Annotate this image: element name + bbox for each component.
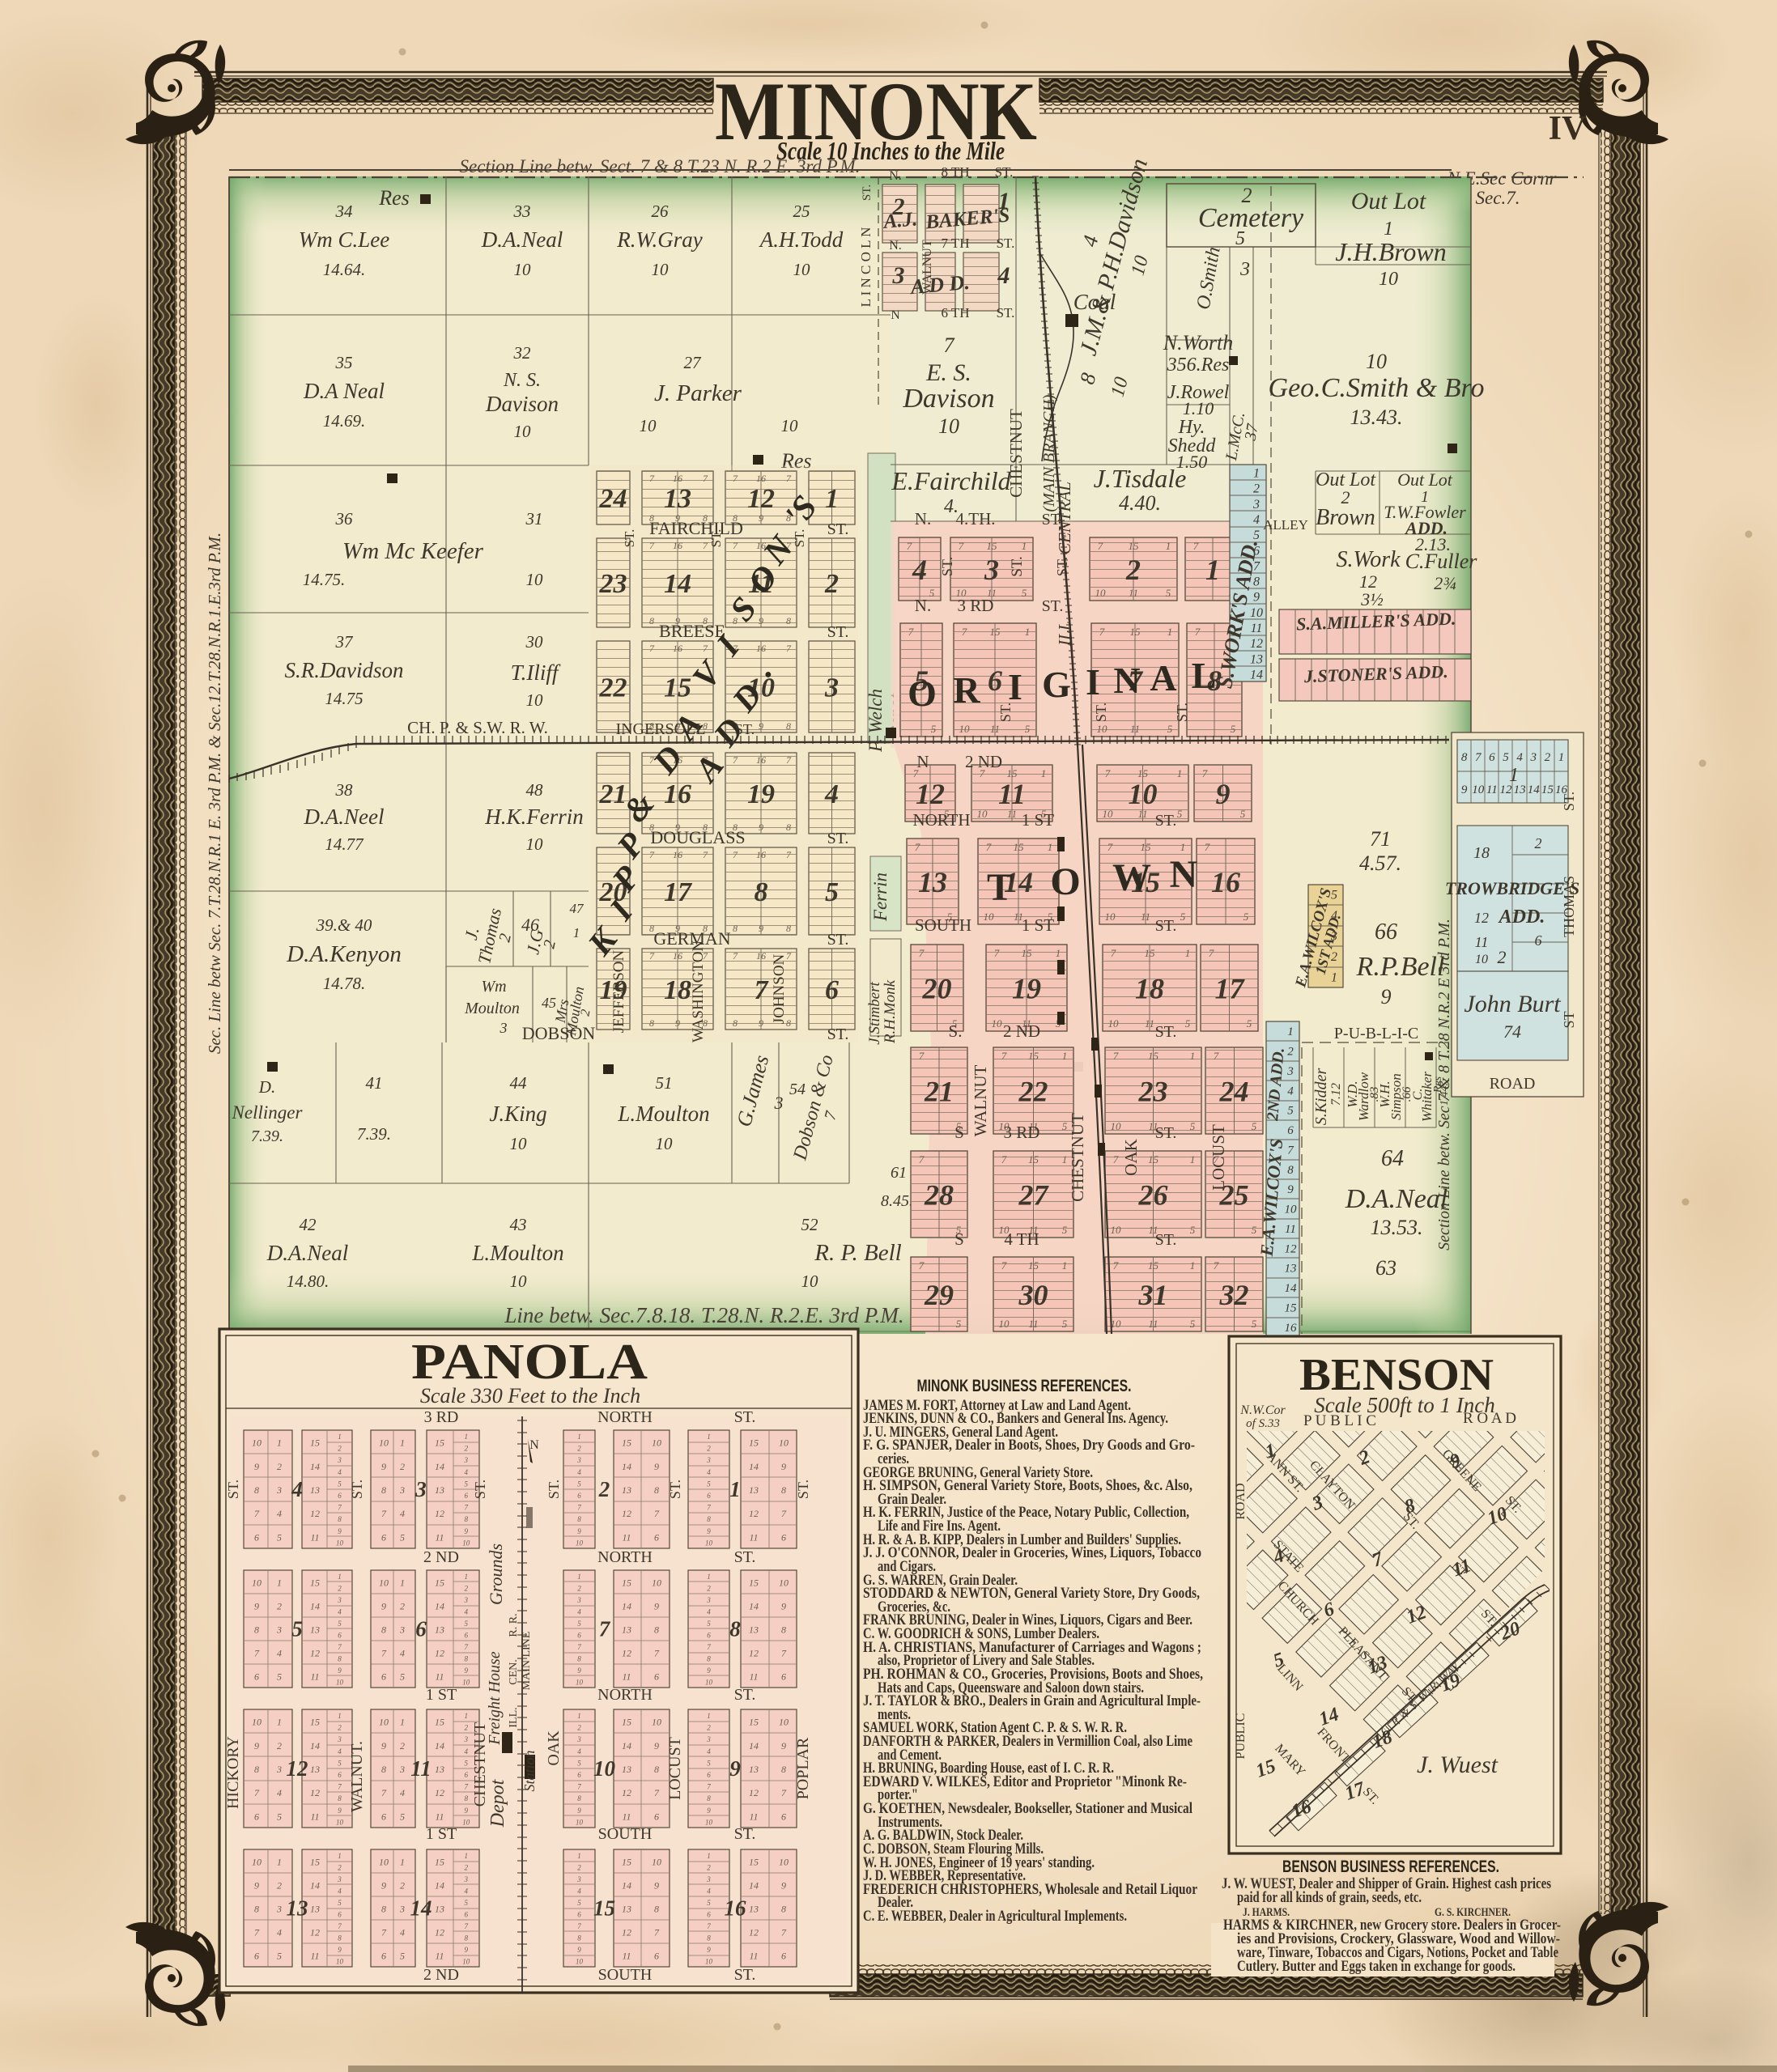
svg-text:44: 44 xyxy=(510,1073,528,1093)
svg-text:ST.: ST. xyxy=(939,557,955,576)
svg-text:7: 7 xyxy=(1098,540,1103,552)
svg-text:5: 5 xyxy=(707,1759,711,1767)
svg-text:14: 14 xyxy=(435,1740,444,1751)
svg-text:6: 6 xyxy=(338,1492,342,1500)
svg-text:7: 7 xyxy=(781,1508,787,1519)
svg-text:ST.: ST. xyxy=(225,1480,241,1499)
svg-text:J.H.Brown: J.H.Brown xyxy=(1335,237,1446,266)
svg-text:6: 6 xyxy=(825,975,839,1005)
svg-text:5: 5 xyxy=(1190,1120,1196,1132)
svg-text:10: 10 xyxy=(999,1318,1010,1330)
svg-text:5: 5 xyxy=(338,1620,342,1628)
svg-text:2: 2 xyxy=(577,1724,581,1732)
svg-text:Sec. Line betw Sec. 7.T.28.N.R: Sec. Line betw Sec. 7.T.28.N.R.1 E. 3rd … xyxy=(205,533,224,1054)
svg-text:5: 5 xyxy=(577,1759,581,1767)
svg-text:10: 10 xyxy=(992,1017,1003,1030)
svg-text:9: 9 xyxy=(707,1807,711,1815)
svg-text:R. R.: R. R. xyxy=(508,1613,520,1637)
svg-text:1: 1 xyxy=(277,1717,282,1728)
svg-text:S: S xyxy=(954,1123,964,1142)
svg-text:9: 9 xyxy=(1461,783,1468,796)
svg-text:8: 8 xyxy=(755,877,768,907)
svg-text:10: 10 xyxy=(1475,953,1488,966)
svg-text:D.A.Neal: D.A.Neal xyxy=(1345,1184,1448,1214)
svg-text:15: 15 xyxy=(435,1857,444,1868)
svg-text:N. S.: N. S. xyxy=(503,370,541,391)
svg-text:5: 5 xyxy=(1190,1318,1196,1330)
svg-text:10: 10 xyxy=(252,1857,261,1868)
svg-text:DOUGLASS: DOUGLASS xyxy=(650,827,745,847)
svg-text:ST.: ST. xyxy=(827,520,849,538)
svg-text:15: 15 xyxy=(749,1717,759,1728)
svg-text:10: 10 xyxy=(1379,269,1398,290)
svg-text:3: 3 xyxy=(337,1456,342,1464)
svg-text:15: 15 xyxy=(435,1717,444,1728)
svg-text:7: 7 xyxy=(1195,626,1201,638)
svg-text:7: 7 xyxy=(959,540,964,552)
svg-text:WALNUT.: WALNUT. xyxy=(348,1741,366,1812)
svg-text:16: 16 xyxy=(673,643,682,654)
svg-text:Grounds: Grounds xyxy=(486,1543,506,1605)
svg-text:8: 8 xyxy=(781,1624,786,1636)
svg-text:12: 12 xyxy=(1474,910,1489,926)
svg-text:11: 11 xyxy=(1148,1318,1158,1330)
svg-text:10: 10 xyxy=(705,1678,713,1686)
svg-text:15: 15 xyxy=(1148,1259,1159,1272)
svg-text:10: 10 xyxy=(1250,606,1263,620)
svg-text:2: 2 xyxy=(277,1461,282,1472)
svg-text:3: 3 xyxy=(576,1875,581,1883)
svg-text:7: 7 xyxy=(465,1504,469,1512)
svg-text:Moulton: Moulton xyxy=(464,1000,520,1017)
svg-text:3: 3 xyxy=(984,554,999,586)
svg-text:7: 7 xyxy=(1001,1050,1007,1062)
svg-text:10: 10 xyxy=(576,1678,584,1686)
svg-text:8: 8 xyxy=(577,1934,581,1942)
svg-text:14: 14 xyxy=(749,1880,759,1892)
svg-text:WASHINGTON: WASHINGTON xyxy=(690,940,707,1043)
svg-text:7: 7 xyxy=(944,333,955,357)
svg-text:12: 12 xyxy=(310,1508,320,1519)
svg-text:9: 9 xyxy=(781,1740,786,1751)
svg-text:8: 8 xyxy=(649,1017,654,1029)
svg-text:10: 10 xyxy=(1105,911,1116,923)
svg-text:13: 13 xyxy=(918,866,947,898)
svg-text:13: 13 xyxy=(310,1764,320,1775)
svg-text:13: 13 xyxy=(622,1484,631,1496)
svg-text:11: 11 xyxy=(622,1531,631,1543)
svg-text:4: 4 xyxy=(997,262,1010,289)
svg-text:7: 7 xyxy=(733,950,738,962)
svg-text:9: 9 xyxy=(707,1667,711,1675)
svg-text:3: 3 xyxy=(500,1020,508,1036)
svg-text:74: 74 xyxy=(1503,1021,1521,1042)
svg-text:7: 7 xyxy=(654,1508,660,1519)
svg-text:5: 5 xyxy=(707,1899,711,1907)
svg-text:5: 5 xyxy=(1062,1318,1068,1330)
svg-text:7: 7 xyxy=(707,1922,711,1930)
svg-text:13: 13 xyxy=(749,1484,759,1496)
svg-text:OAK: OAK xyxy=(1121,1139,1141,1176)
svg-text:1: 1 xyxy=(1253,467,1260,481)
svg-text:15: 15 xyxy=(1028,1050,1039,1062)
svg-text:2: 2 xyxy=(1125,554,1141,586)
svg-text:4: 4 xyxy=(824,779,839,809)
svg-text:10: 10 xyxy=(1111,1224,1122,1236)
svg-text:3: 3 xyxy=(464,1596,469,1604)
svg-text:8: 8 xyxy=(786,923,791,934)
svg-text:15: 15 xyxy=(1007,767,1018,779)
svg-text:Wm: Wm xyxy=(481,978,506,996)
svg-text:11: 11 xyxy=(1475,934,1489,950)
svg-text:4: 4 xyxy=(465,1747,469,1756)
svg-text:9: 9 xyxy=(465,1527,469,1535)
svg-text:8: 8 xyxy=(654,1624,659,1636)
svg-text:23: 23 xyxy=(599,569,627,599)
svg-text:8: 8 xyxy=(577,1654,581,1662)
svg-text:2 ND: 2 ND xyxy=(1003,1021,1040,1041)
svg-text:1: 1 xyxy=(338,1433,342,1441)
svg-text:2: 2 xyxy=(577,1863,581,1871)
svg-text:5: 5 xyxy=(825,877,839,907)
svg-text:6: 6 xyxy=(654,1951,659,1962)
svg-text:8: 8 xyxy=(338,1794,342,1802)
svg-text:7 TH: 7 TH xyxy=(941,236,969,251)
svg-text:12: 12 xyxy=(916,778,945,810)
svg-text:8: 8 xyxy=(781,1484,786,1496)
svg-text:2: 2 xyxy=(465,1584,469,1592)
svg-text:LOCUST: LOCUST xyxy=(1209,1124,1228,1191)
svg-text:6: 6 xyxy=(381,1811,386,1822)
svg-text:5: 5 xyxy=(1166,587,1171,599)
svg-text:16: 16 xyxy=(756,473,766,484)
svg-text:8: 8 xyxy=(254,1624,259,1636)
svg-text:14: 14 xyxy=(1528,783,1541,796)
svg-text:7.39.: 7.39. xyxy=(251,1127,283,1145)
svg-text:JEFFERSON: JEFFERSON xyxy=(610,950,627,1034)
svg-text:10: 10 xyxy=(526,570,544,589)
svg-text:R. P. Bell: R. P. Bell xyxy=(814,1240,901,1266)
svg-text:30: 30 xyxy=(1018,1279,1048,1311)
svg-text:6 TH: 6 TH xyxy=(941,305,969,321)
svg-text:14.69.: 14.69. xyxy=(323,411,366,431)
svg-text:4: 4 xyxy=(577,1887,581,1895)
svg-text:5: 5 xyxy=(400,1671,405,1683)
svg-text:10: 10 xyxy=(462,1539,470,1547)
svg-text:7: 7 xyxy=(254,1508,260,1519)
svg-text:7: 7 xyxy=(1205,841,1210,853)
svg-text:ST.: ST. xyxy=(1561,792,1577,811)
svg-text:Ferrin: Ferrin xyxy=(870,873,891,922)
svg-text:15: 15 xyxy=(1137,767,1149,779)
svg-text:356.Res: 356.Res xyxy=(1167,355,1230,376)
svg-text:5: 5 xyxy=(277,1531,282,1543)
svg-text:ST.: ST. xyxy=(1155,1124,1177,1142)
svg-text:9: 9 xyxy=(654,1601,659,1612)
svg-text:15: 15 xyxy=(310,1717,320,1728)
svg-text:1: 1 xyxy=(1062,1050,1068,1062)
svg-text:2: 2 xyxy=(338,1584,342,1592)
svg-text:6: 6 xyxy=(577,1771,581,1779)
svg-text:9: 9 xyxy=(1287,1183,1294,1196)
svg-text:8: 8 xyxy=(1287,1164,1294,1177)
svg-text:15: 15 xyxy=(1285,1301,1298,1314)
svg-text:7: 7 xyxy=(338,1643,342,1651)
svg-text:R.P.Bell: R.P.Bell xyxy=(1356,952,1445,982)
svg-text:5: 5 xyxy=(1240,808,1246,820)
svg-text:12: 12 xyxy=(310,1648,320,1659)
svg-text:N.: N. xyxy=(889,239,902,253)
svg-text:14: 14 xyxy=(622,1880,631,1892)
svg-text:N: N xyxy=(529,1438,539,1452)
svg-text:3: 3 xyxy=(399,1904,405,1915)
svg-text:4: 4 xyxy=(277,1787,282,1798)
svg-text:1: 1 xyxy=(1022,540,1027,552)
svg-text:14: 14 xyxy=(1250,668,1263,681)
svg-text:4: 4 xyxy=(277,1927,282,1938)
svg-text:3: 3 xyxy=(337,1735,342,1743)
svg-text:5: 5 xyxy=(465,1480,469,1488)
svg-text:5: 5 xyxy=(707,1620,711,1628)
svg-text:1: 1 xyxy=(1062,1259,1068,1272)
svg-text:10: 10 xyxy=(1108,1017,1120,1030)
svg-text:9: 9 xyxy=(759,720,763,732)
svg-text:6: 6 xyxy=(338,1910,342,1918)
svg-text:10: 10 xyxy=(1285,1204,1298,1216)
svg-text:BENSON BUSINESS REFERENCES.: BENSON BUSINESS REFERENCES. xyxy=(1282,1858,1499,1876)
svg-text:13: 13 xyxy=(664,484,691,514)
svg-text:10: 10 xyxy=(379,1577,389,1589)
svg-text:9: 9 xyxy=(781,1461,786,1472)
svg-text:8: 8 xyxy=(733,923,738,934)
svg-text:5: 5 xyxy=(1252,1318,1257,1330)
svg-text:D.A.Neal: D.A.Neal xyxy=(266,1241,349,1265)
svg-text:9: 9 xyxy=(381,1880,386,1892)
svg-text:12: 12 xyxy=(435,1927,444,1938)
svg-text:10: 10 xyxy=(526,834,544,854)
svg-text:8: 8 xyxy=(654,1484,659,1496)
svg-text:15: 15 xyxy=(1022,947,1033,959)
svg-text:18: 18 xyxy=(1135,973,1164,1005)
svg-text:11: 11 xyxy=(622,1951,631,1962)
svg-text:3: 3 xyxy=(706,1875,711,1883)
svg-text:6: 6 xyxy=(1489,751,1495,764)
svg-text:9: 9 xyxy=(654,1461,659,1472)
svg-text:7: 7 xyxy=(1113,1050,1119,1062)
svg-text:7: 7 xyxy=(962,626,967,638)
svg-text:16: 16 xyxy=(725,1896,747,1921)
svg-text:L.Moulton: L.Moulton xyxy=(471,1241,563,1265)
svg-text:25: 25 xyxy=(793,202,810,221)
svg-text:2: 2 xyxy=(1545,751,1551,764)
svg-text:20: 20 xyxy=(922,973,952,1005)
svg-text:15: 15 xyxy=(310,1577,320,1589)
svg-text:E. S.: E. S. xyxy=(925,359,971,386)
svg-text:10: 10 xyxy=(576,1539,584,1547)
svg-text:1: 1 xyxy=(577,1712,581,1720)
svg-text:8: 8 xyxy=(338,1654,342,1662)
svg-text:3: 3 xyxy=(276,1484,282,1496)
svg-text:7: 7 xyxy=(649,950,655,962)
svg-text:7: 7 xyxy=(338,1504,342,1512)
svg-text:7: 7 xyxy=(1099,626,1105,638)
svg-text:5: 5 xyxy=(1062,1224,1068,1236)
svg-text:ST.: ST. xyxy=(708,529,724,548)
svg-text:14: 14 xyxy=(310,1461,320,1472)
svg-text:WALNUT: WALNUT xyxy=(920,240,934,295)
svg-text:5: 5 xyxy=(1177,808,1183,820)
svg-text:2: 2 xyxy=(707,1724,711,1732)
svg-text:33: 33 xyxy=(513,202,531,221)
svg-text:14: 14 xyxy=(310,1740,320,1751)
svg-text:10: 10 xyxy=(576,1957,584,1965)
svg-text:10: 10 xyxy=(705,1539,713,1547)
svg-text:ST.: ST. xyxy=(995,164,1014,180)
svg-text:7: 7 xyxy=(986,841,992,853)
svg-text:14.75.: 14.75. xyxy=(303,570,346,589)
svg-text:15: 15 xyxy=(1148,1153,1159,1165)
svg-text:W: W xyxy=(1112,856,1151,899)
svg-text:7: 7 xyxy=(381,1508,387,1519)
svg-text:S.Kidder: S.Kidder xyxy=(1312,1068,1330,1126)
svg-text:O: O xyxy=(908,673,937,714)
svg-text:10: 10 xyxy=(793,260,811,279)
svg-text:Res: Res xyxy=(378,186,410,210)
svg-text:12: 12 xyxy=(287,1756,308,1781)
svg-text:9: 9 xyxy=(707,1527,711,1535)
svg-text:11: 11 xyxy=(1251,622,1263,635)
svg-text:7: 7 xyxy=(919,1050,925,1062)
svg-text:3: 3 xyxy=(399,1484,405,1496)
svg-text:7: 7 xyxy=(649,473,655,484)
svg-text:John Burt: John Burt xyxy=(1464,991,1561,1017)
svg-text:L I N C O L N: L I N C O L N xyxy=(858,227,874,308)
svg-text:PANOLA: PANOLA xyxy=(411,1335,648,1390)
svg-text:3: 3 xyxy=(706,1596,711,1604)
svg-text:1: 1 xyxy=(1558,751,1565,764)
svg-text:14: 14 xyxy=(435,1601,444,1612)
svg-text:8: 8 xyxy=(654,1904,659,1915)
svg-text:8.45.: 8.45. xyxy=(881,1192,913,1210)
svg-text:13: 13 xyxy=(435,1764,444,1775)
svg-text:2: 2 xyxy=(577,1584,581,1592)
svg-text:13: 13 xyxy=(435,1904,444,1915)
svg-text:28: 28 xyxy=(924,1179,954,1212)
svg-text:NORTH: NORTH xyxy=(597,1408,653,1426)
svg-text:5: 5 xyxy=(1062,1120,1068,1132)
svg-text:PUBLIC: PUBLIC xyxy=(1234,1713,1248,1760)
svg-text:7: 7 xyxy=(707,1783,711,1791)
svg-text:10: 10 xyxy=(1111,1120,1122,1132)
svg-text:41: 41 xyxy=(366,1073,383,1093)
svg-text:T.Iliff: T.Iliff xyxy=(511,660,561,685)
svg-text:4: 4 xyxy=(338,1607,342,1616)
svg-text:10: 10 xyxy=(652,1577,661,1589)
svg-text:1: 1 xyxy=(465,1852,469,1860)
svg-text:OAK: OAK xyxy=(545,1730,563,1766)
svg-text:15: 15 xyxy=(1145,947,1156,959)
svg-text:8: 8 xyxy=(381,1764,386,1775)
svg-text:10: 10 xyxy=(779,1577,789,1589)
svg-text:10: 10 xyxy=(779,1437,789,1449)
svg-text:7: 7 xyxy=(733,849,738,860)
svg-text:9: 9 xyxy=(654,1740,659,1751)
svg-text:16: 16 xyxy=(1211,866,1240,898)
svg-text:2: 2 xyxy=(400,1880,405,1892)
svg-text:ST.: ST. xyxy=(1155,812,1177,830)
svg-text:1: 1 xyxy=(465,1573,469,1581)
svg-text:1: 1 xyxy=(277,1577,282,1589)
svg-text:11: 11 xyxy=(435,1811,444,1822)
svg-text:G: G xyxy=(1042,664,1071,705)
svg-text:1: 1 xyxy=(707,1852,711,1860)
svg-text:1: 1 xyxy=(577,1433,581,1441)
svg-text:8: 8 xyxy=(733,1017,738,1029)
svg-text:12: 12 xyxy=(622,1787,631,1798)
svg-text:4: 4 xyxy=(400,1927,405,1938)
svg-text:3 RD: 3 RD xyxy=(958,596,994,615)
svg-text:13: 13 xyxy=(622,1904,631,1915)
svg-text:Out Lot: Out Lot xyxy=(1351,188,1426,214)
svg-text:7: 7 xyxy=(1214,1259,1219,1272)
svg-text:10: 10 xyxy=(462,1678,470,1686)
svg-text:1: 1 xyxy=(338,1573,342,1581)
svg-text:12: 12 xyxy=(1285,1242,1298,1255)
svg-text:1: 1 xyxy=(707,1433,711,1441)
svg-text:9: 9 xyxy=(577,1667,581,1675)
svg-text:4: 4 xyxy=(465,1468,469,1476)
svg-text:C.Fuller: C.Fuller xyxy=(1405,550,1478,573)
svg-text:7.39.: 7.39. xyxy=(357,1124,391,1144)
svg-text:A.J.: A.J. xyxy=(881,208,918,233)
svg-text:10: 10 xyxy=(252,1717,261,1728)
svg-text:6: 6 xyxy=(254,1531,259,1543)
svg-text:3: 3 xyxy=(1529,751,1537,764)
svg-text:P-U-B-L-I-C: P-U-B-L-I-C xyxy=(1334,1025,1418,1042)
svg-text:4: 4 xyxy=(338,1747,342,1756)
svg-text:48: 48 xyxy=(526,780,544,800)
svg-text:5: 5 xyxy=(1252,1224,1257,1236)
svg-text:37: 37 xyxy=(335,632,355,652)
svg-text:E.Fairchild: E.Fairchild xyxy=(891,466,1011,495)
svg-text:10: 10 xyxy=(510,1134,528,1153)
svg-text:6: 6 xyxy=(781,1531,786,1543)
svg-text:9: 9 xyxy=(675,1017,680,1029)
svg-text:4: 4 xyxy=(277,1508,282,1519)
svg-text:7: 7 xyxy=(703,849,708,860)
svg-text:7: 7 xyxy=(781,1787,787,1798)
svg-text:4: 4 xyxy=(1516,751,1523,764)
svg-text:3: 3 xyxy=(576,1735,581,1743)
svg-text:14: 14 xyxy=(435,1461,444,1472)
svg-text:11: 11 xyxy=(1028,1318,1038,1330)
svg-text:35: 35 xyxy=(335,353,353,372)
svg-text:N.: N. xyxy=(889,169,902,183)
svg-text:22: 22 xyxy=(599,673,627,703)
svg-text:7: 7 xyxy=(465,1643,469,1651)
svg-text:2: 2 xyxy=(1287,1046,1294,1059)
svg-text:ST: ST xyxy=(1561,1011,1577,1028)
svg-text:14: 14 xyxy=(664,569,691,599)
svg-text:5: 5 xyxy=(291,1617,303,1641)
svg-text:11: 11 xyxy=(749,1531,758,1543)
svg-text:4: 4 xyxy=(465,1887,469,1895)
svg-text:11: 11 xyxy=(1486,783,1498,796)
svg-text:Cemetery: Cemetery xyxy=(1198,203,1304,233)
svg-text:12: 12 xyxy=(622,1927,631,1938)
svg-text:6: 6 xyxy=(707,1771,711,1779)
svg-text:7: 7 xyxy=(915,841,920,853)
